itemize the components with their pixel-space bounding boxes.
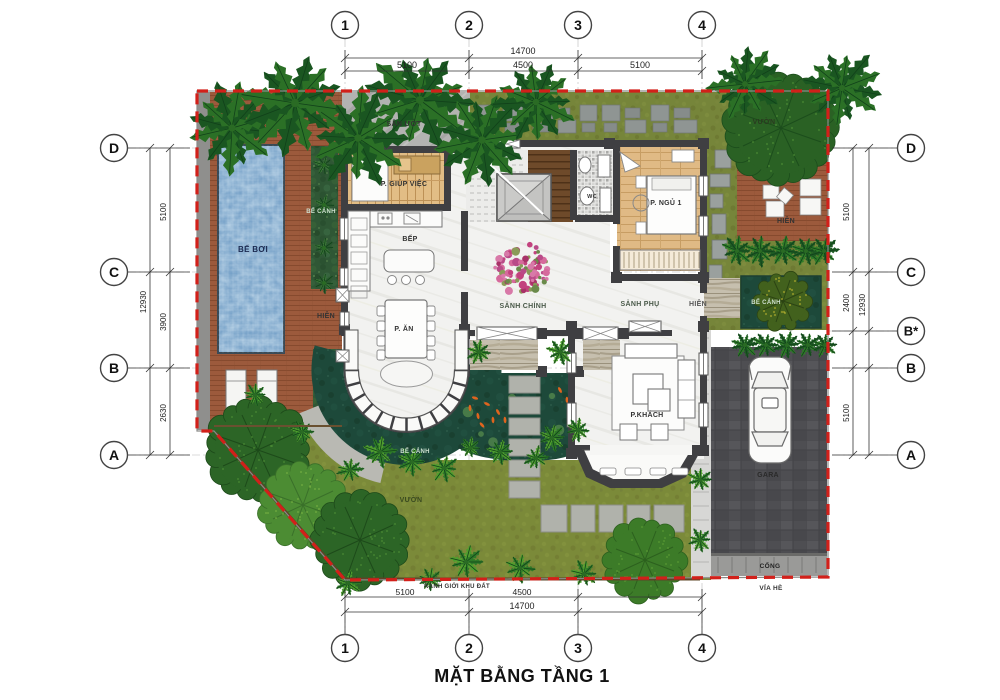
svg-text:HIÊN: HIÊN	[317, 311, 335, 320]
svg-text:C: C	[109, 264, 119, 280]
svg-text:BỂ BƠI: BỂ BƠI	[238, 245, 268, 254]
svg-text:B*: B*	[904, 324, 919, 339]
svg-text:4500: 4500	[513, 587, 532, 597]
svg-text:12930: 12930	[139, 290, 148, 313]
svg-text:5100: 5100	[396, 587, 415, 597]
svg-text:SẢNH PHỤ: SẢNH PHỤ	[621, 299, 660, 308]
svg-text:B: B	[109, 360, 119, 376]
svg-text:GARA: GARA	[757, 472, 779, 479]
svg-text:5100: 5100	[842, 404, 851, 422]
svg-text:P. ĂN: P. ĂN	[394, 324, 413, 333]
svg-text:P. GIÚP VIỆC: P. GIÚP VIỆC	[381, 179, 428, 188]
svg-text:WC: WC	[587, 194, 597, 200]
svg-text:SÂN ƯỚT: SÂN ƯỚT	[387, 119, 422, 128]
svg-text:3: 3	[574, 17, 582, 33]
svg-text:5100: 5100	[159, 203, 168, 221]
svg-text:P.KHÁCH: P.KHÁCH	[630, 410, 663, 419]
svg-text:BỂ CẢNH: BỂ CẢNH	[751, 299, 780, 306]
svg-text:A: A	[109, 447, 119, 463]
svg-text:2: 2	[465, 17, 473, 33]
svg-text:2: 2	[465, 640, 473, 656]
svg-text:1: 1	[341, 17, 349, 33]
svg-text:BỂ CẢNH: BỂ CẢNH	[400, 448, 429, 455]
svg-text:12930: 12930	[858, 293, 867, 316]
svg-text:SẢNH CHÍNH: SẢNH CHÍNH	[500, 301, 547, 310]
svg-text:5100: 5100	[397, 60, 417, 70]
svg-text:VƯỜN: VƯỜN	[400, 495, 423, 504]
svg-text:D: D	[109, 140, 119, 156]
svg-text:RANH GIỚI KHU ĐẤT: RANH GIỚI KHU ĐẤT	[424, 582, 490, 590]
svg-text:4: 4	[698, 640, 706, 656]
svg-text:3900: 3900	[159, 313, 168, 331]
svg-text:5100: 5100	[630, 60, 650, 70]
svg-text:D: D	[906, 140, 916, 156]
svg-text:P. NGỦ 1: P. NGỦ 1	[650, 198, 681, 207]
svg-text:14700: 14700	[509, 601, 534, 611]
svg-text:CỔNG: CỔNG	[760, 561, 781, 570]
svg-text:VƯỜN: VƯỜN	[753, 117, 776, 126]
svg-text:4: 4	[698, 17, 706, 33]
svg-text:4500: 4500	[513, 60, 533, 70]
svg-text:A: A	[906, 447, 916, 463]
svg-text:B: B	[906, 360, 916, 376]
svg-text:2630: 2630	[159, 404, 168, 422]
svg-text:C: C	[906, 264, 916, 280]
svg-text:14700: 14700	[510, 46, 535, 56]
svg-text:VỈA HÈ: VỈA HÈ	[759, 583, 783, 592]
svg-text:1: 1	[341, 640, 349, 656]
svg-text:5100: 5100	[842, 203, 851, 221]
svg-text:HIÊN: HIÊN	[777, 216, 795, 225]
svg-text:3: 3	[574, 640, 582, 656]
svg-text:BỂ CẢNH: BỂ CẢNH	[306, 208, 335, 215]
svg-text:2400: 2400	[842, 294, 851, 312]
svg-text:HIÊN: HIÊN	[689, 299, 707, 308]
svg-text:MẶT BẰNG TẦNG 1: MẶT BẰNG TẦNG 1	[434, 665, 610, 686]
